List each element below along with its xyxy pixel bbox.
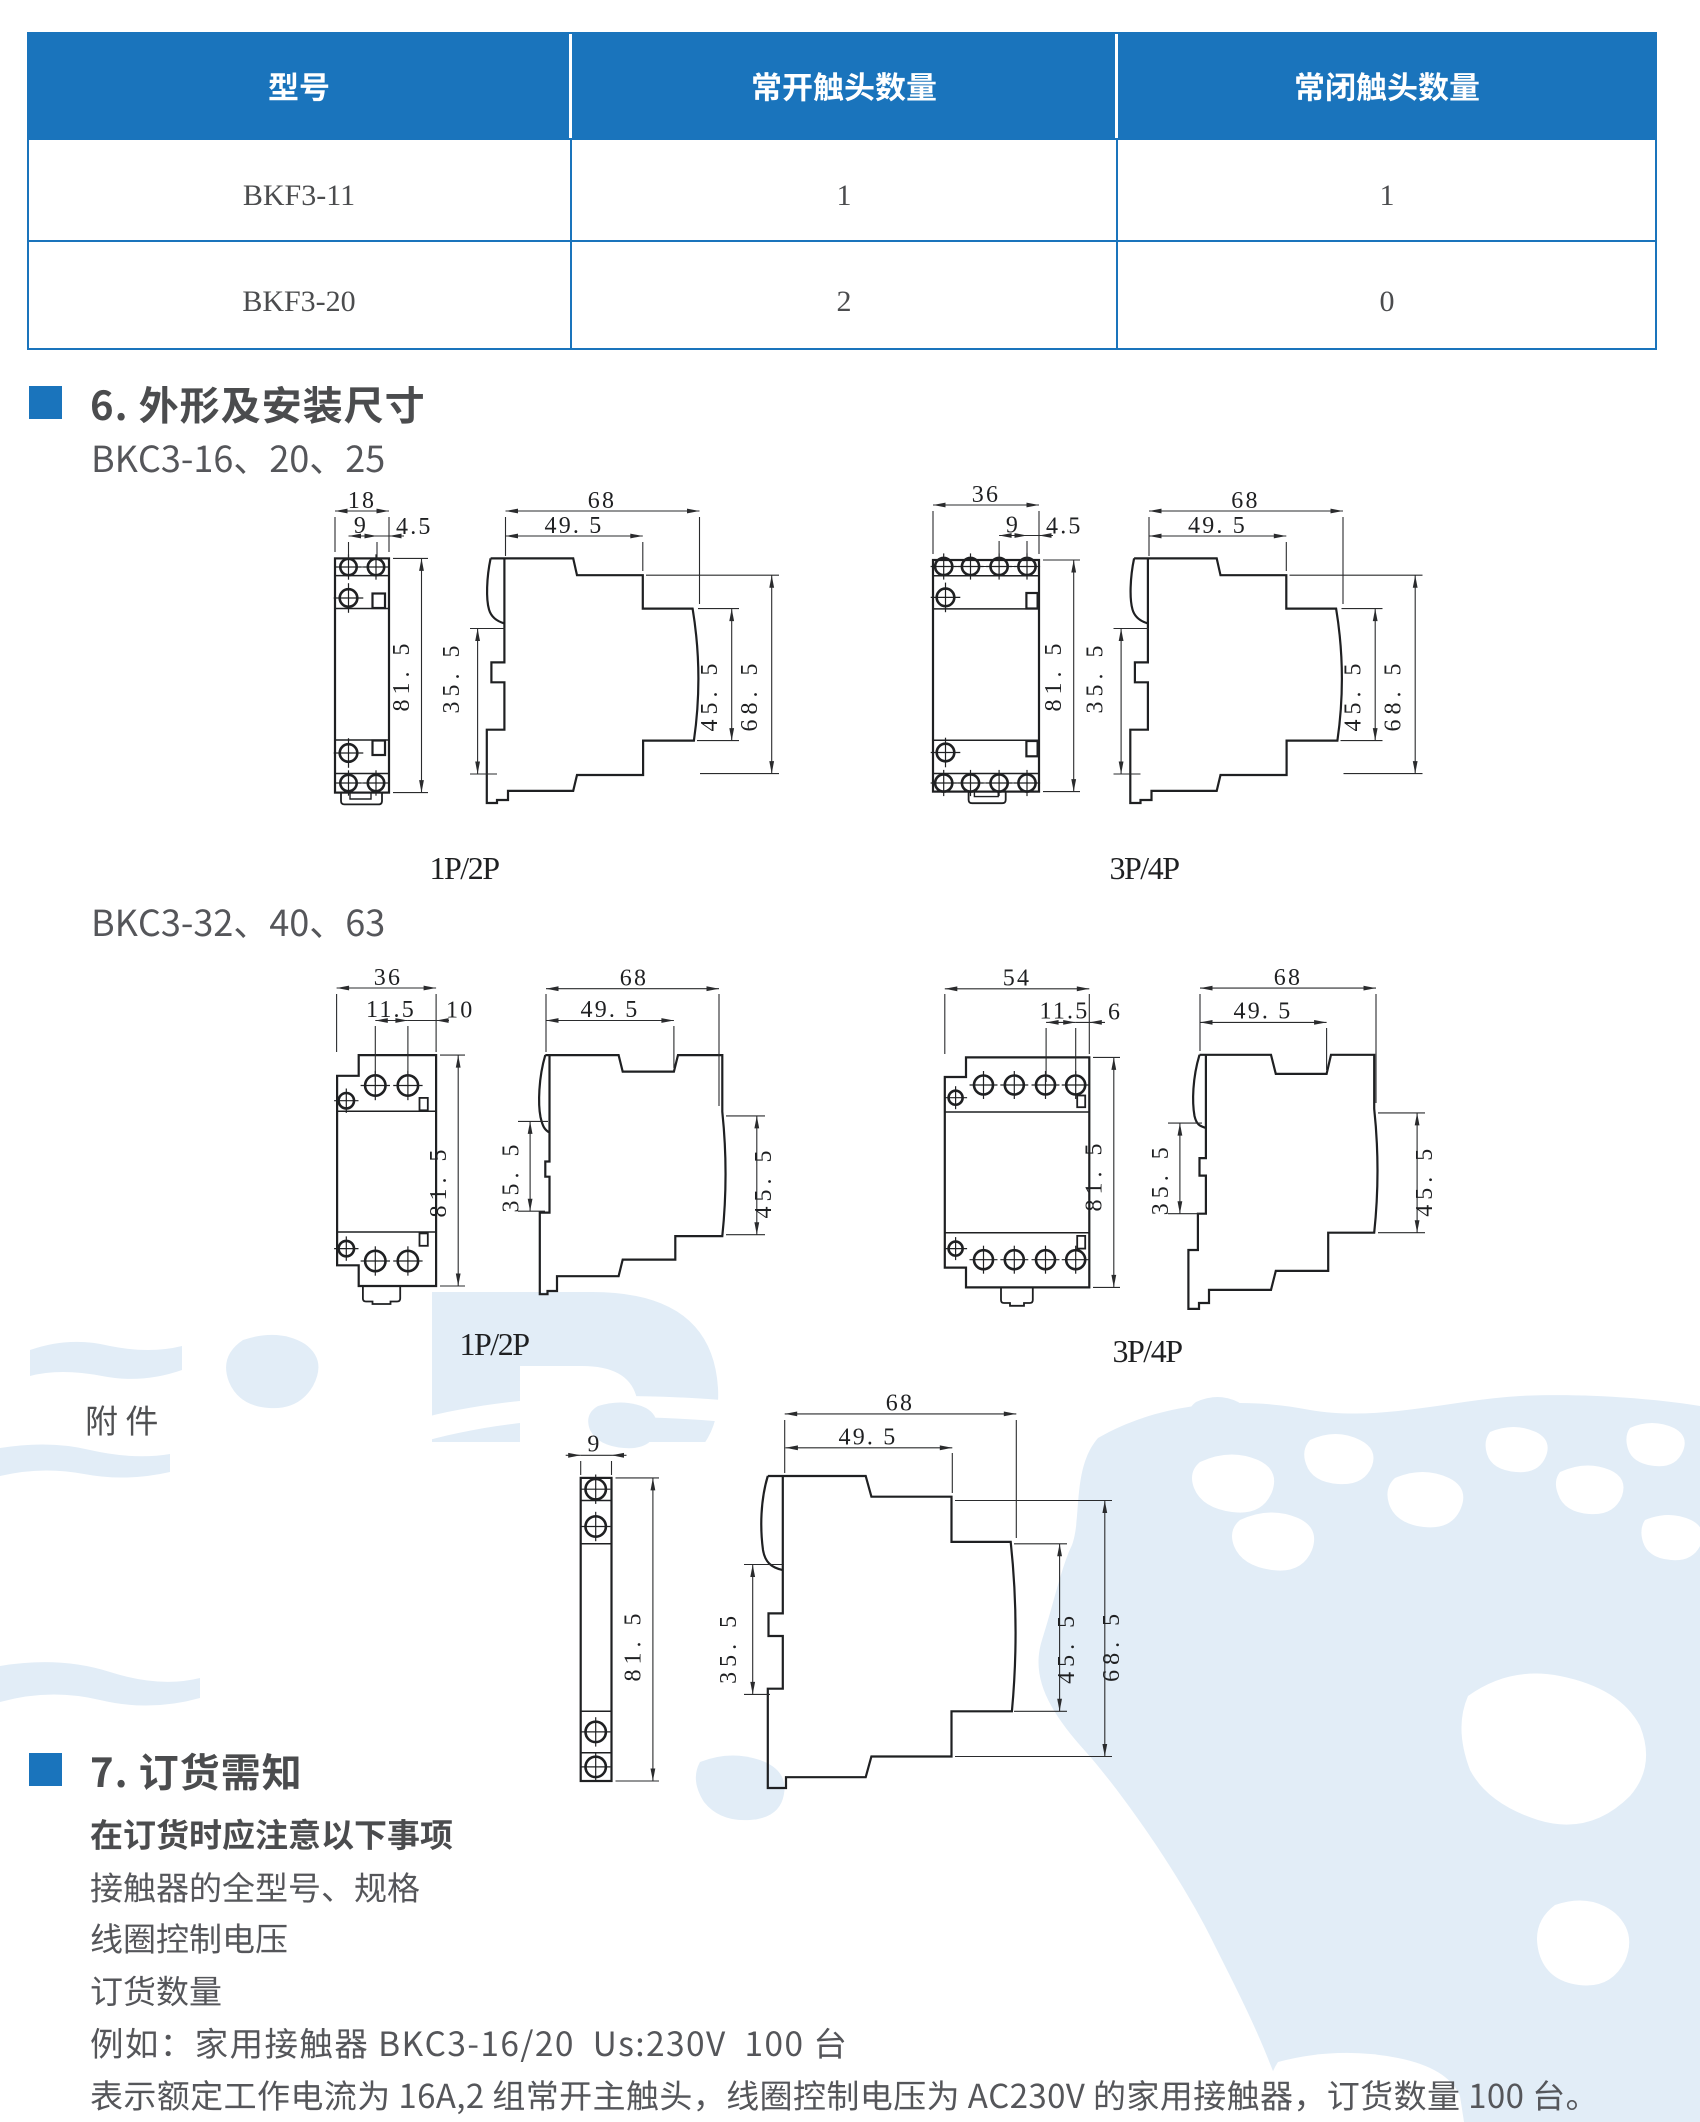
svg-text:10: 10 — [446, 998, 474, 1024]
svg-text:68. 5: 68. 5 — [1381, 659, 1407, 732]
svg-text:3P/4P: 3P/4P — [1110, 850, 1180, 886]
svg-text:6: 6 — [1108, 999, 1122, 1025]
svg-text:45. 5: 45. 5 — [1341, 659, 1367, 732]
svg-text:11.5: 11.5 — [366, 997, 416, 1023]
svg-text:68. 5: 68. 5 — [737, 659, 763, 732]
svg-text:35. 5: 35. 5 — [716, 1611, 742, 1684]
svg-text:35. 5: 35. 5 — [1083, 641, 1109, 714]
svg-text:81. 5: 81. 5 — [426, 1145, 452, 1218]
svg-text:81. 5: 81. 5 — [1041, 639, 1067, 712]
svg-text:4.5: 4.5 — [1046, 514, 1083, 540]
svg-text:1P/2P: 1P/2P — [430, 850, 500, 886]
svg-text:45. 5: 45. 5 — [1412, 1144, 1438, 1217]
svg-text:68: 68 — [620, 966, 648, 992]
svg-text:68: 68 — [588, 488, 616, 514]
svg-text:49. 5: 49. 5 — [1234, 999, 1293, 1025]
svg-text:9: 9 — [1006, 513, 1020, 539]
svg-text:68: 68 — [1274, 965, 1302, 991]
svg-text:9: 9 — [354, 513, 368, 539]
svg-text:1P/2P: 1P/2P — [460, 1326, 530, 1362]
svg-text:45. 5: 45. 5 — [751, 1146, 777, 1219]
svg-text:45. 5: 45. 5 — [697, 659, 723, 732]
svg-text:68: 68 — [886, 1390, 914, 1416]
svg-text:35. 5: 35. 5 — [1148, 1142, 1174, 1215]
svg-text:49. 5: 49. 5 — [1188, 513, 1247, 539]
svg-text:49. 5: 49. 5 — [545, 513, 604, 539]
svg-text:68: 68 — [1231, 488, 1259, 514]
svg-text:81. 5: 81. 5 — [621, 1609, 647, 1682]
svg-text:35. 5: 35. 5 — [439, 641, 465, 714]
svg-text:54: 54 — [1003, 966, 1031, 992]
svg-text:45. 5: 45. 5 — [1054, 1611, 1080, 1684]
svg-text:9: 9 — [587, 1432, 601, 1458]
svg-text:3P/4P: 3P/4P — [1113, 1333, 1183, 1369]
svg-text:68. 5: 68. 5 — [1099, 1609, 1125, 1682]
svg-text:36: 36 — [972, 482, 1000, 508]
svg-text:81. 5: 81. 5 — [389, 639, 415, 712]
svg-text:35. 5: 35. 5 — [499, 1140, 525, 1213]
svg-text:4.5: 4.5 — [396, 514, 433, 540]
svg-text:49. 5: 49. 5 — [839, 1424, 898, 1450]
svg-text:81. 5: 81. 5 — [1082, 1139, 1108, 1212]
svg-text:49. 5: 49. 5 — [581, 997, 640, 1023]
svg-text:11.5: 11.5 — [1040, 999, 1090, 1025]
svg-text:18: 18 — [348, 488, 376, 514]
svg-text:36: 36 — [374, 965, 402, 991]
